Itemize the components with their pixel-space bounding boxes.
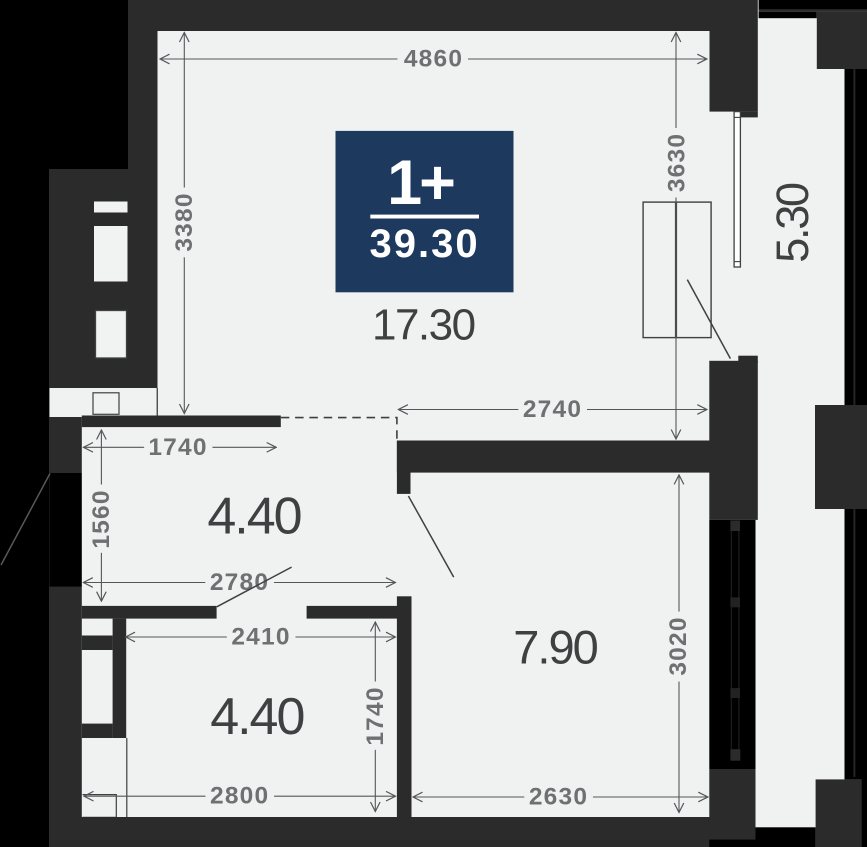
svg-text:4.40: 4.40: [207, 488, 300, 546]
svg-text:2630: 2630: [529, 784, 588, 811]
svg-text:17.30: 17.30: [372, 301, 475, 350]
svg-text:3020: 3020: [665, 616, 692, 675]
svg-text:2410: 2410: [231, 624, 290, 651]
svg-text:1+: 1+: [387, 148, 454, 218]
svg-text:4860: 4860: [404, 46, 463, 73]
svg-text:2740: 2740: [523, 396, 582, 423]
svg-text:4.40: 4.40: [210, 688, 303, 746]
svg-text:39.30: 39.30: [370, 222, 480, 266]
svg-text:1740: 1740: [362, 686, 389, 745]
svg-text:2800: 2800: [210, 783, 269, 810]
svg-text:3630: 3630: [663, 133, 690, 192]
svg-text:1560: 1560: [88, 489, 115, 548]
svg-text:2780: 2780: [210, 569, 269, 596]
svg-text:5.30: 5.30: [767, 183, 818, 263]
svg-text:1740: 1740: [148, 434, 207, 461]
svg-text:3380: 3380: [171, 192, 198, 251]
svg-text:7.90: 7.90: [513, 621, 597, 674]
